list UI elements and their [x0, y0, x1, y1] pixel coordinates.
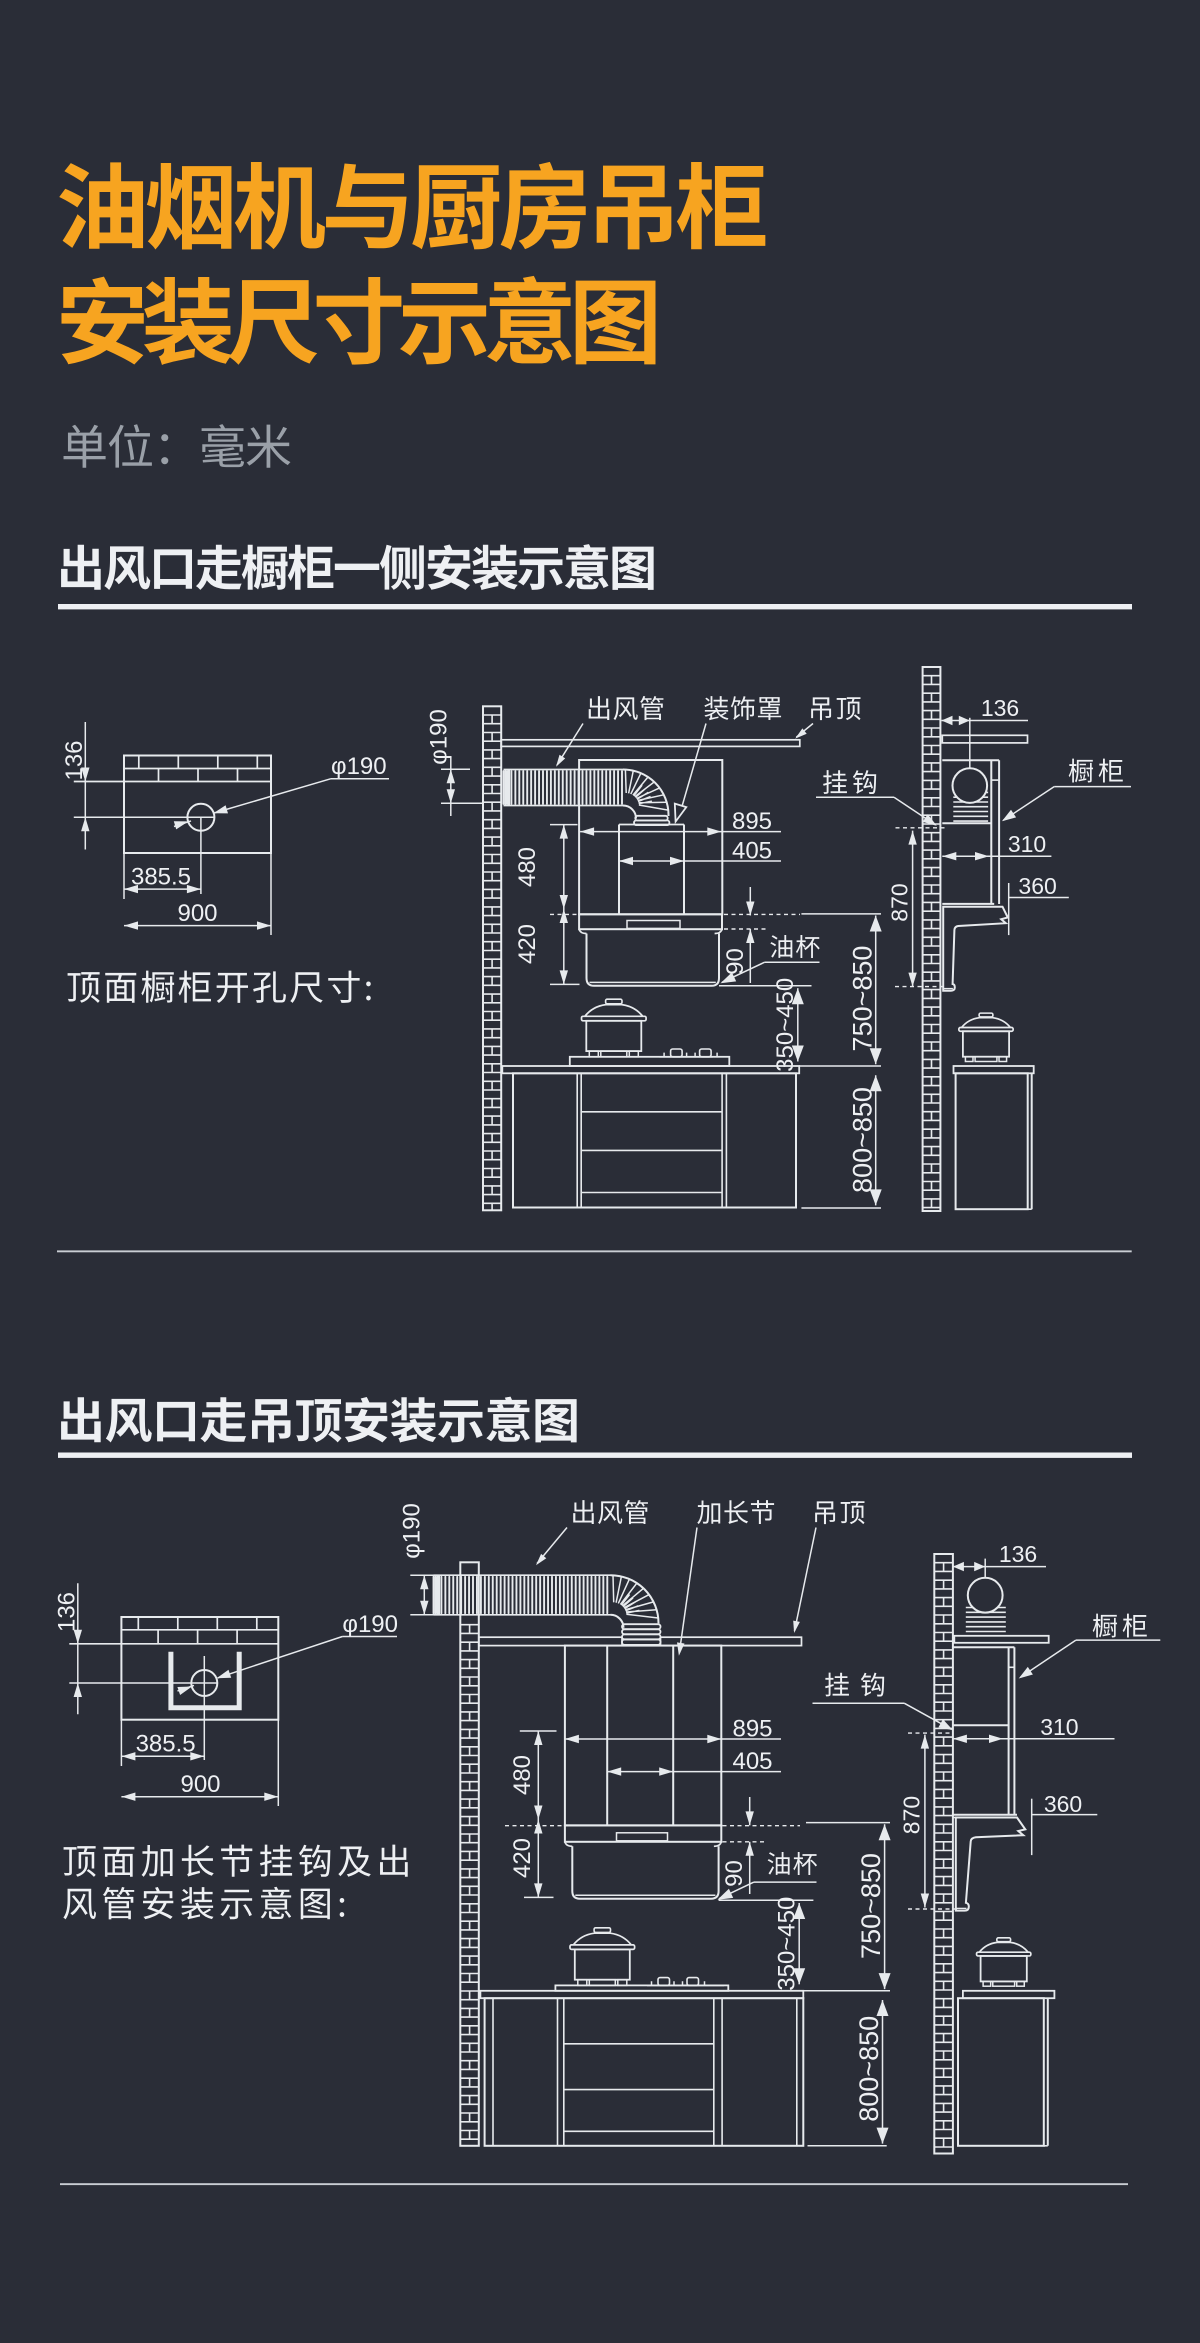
svg-text:φ190: φ190: [331, 753, 387, 780]
svg-text:480: 480: [509, 1755, 536, 1795]
svg-text:310: 310: [1008, 831, 1046, 857]
svg-text:800~850: 800~850: [854, 2016, 884, 2122]
svg-text:136: 136: [61, 740, 88, 780]
svg-text:φ190: φ190: [399, 1503, 426, 1559]
svg-text:870: 870: [898, 1796, 924, 1834]
svg-text:360: 360: [1018, 873, 1056, 899]
svg-text:800~850: 800~850: [847, 1087, 877, 1193]
svg-text:φ190: φ190: [342, 1611, 398, 1638]
svg-text:350~450: 350~450: [772, 978, 799, 1072]
svg-text:405: 405: [732, 1748, 772, 1775]
svg-text:350~450: 350~450: [773, 1897, 800, 1991]
svg-text:750~850: 750~850: [847, 946, 877, 1052]
svg-text:895: 895: [732, 1716, 772, 1743]
svg-text:360: 360: [1044, 1791, 1082, 1817]
svg-text:310: 310: [1040, 1714, 1078, 1740]
svg-text:900: 900: [177, 900, 217, 927]
svg-text:870: 870: [886, 883, 912, 921]
svg-text:385.5: 385.5: [136, 1731, 196, 1758]
svg-text:136: 136: [981, 695, 1019, 721]
svg-text:136: 136: [999, 1541, 1037, 1567]
svg-text:90: 90: [721, 1860, 748, 1887]
svg-text:405: 405: [732, 838, 772, 865]
svg-text:420: 420: [509, 1838, 536, 1878]
svg-text:750~850: 750~850: [856, 1853, 886, 1959]
svg-text:136: 136: [53, 1592, 80, 1632]
svg-text:900: 900: [180, 1771, 220, 1798]
svg-text:385.5: 385.5: [131, 864, 191, 891]
svg-text:895: 895: [732, 808, 772, 835]
svg-text:φ190: φ190: [425, 709, 452, 765]
svg-text:420: 420: [514, 924, 541, 964]
svg-text:480: 480: [514, 847, 541, 887]
